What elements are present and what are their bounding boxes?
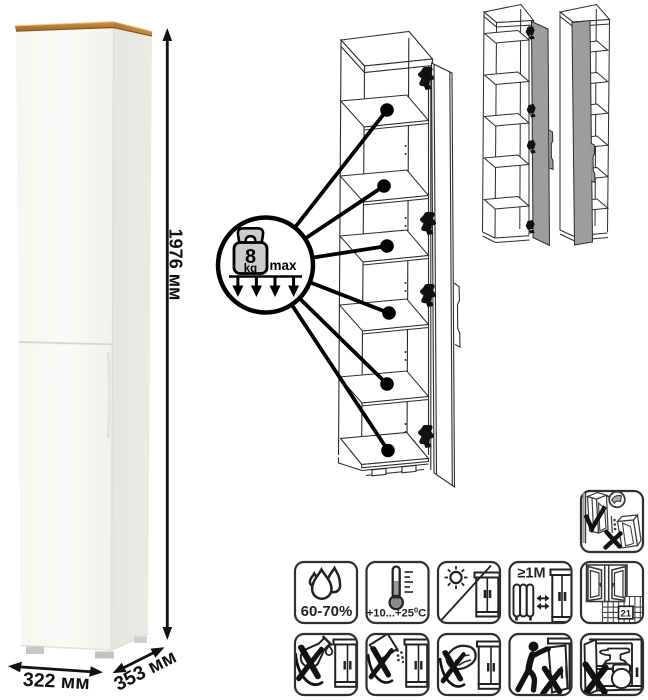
svg-text:+10...+250C: +10...+250C bbox=[367, 606, 427, 620]
svg-text:21: 21 bbox=[621, 608, 632, 619]
svg-text:kg: kg bbox=[244, 263, 257, 275]
svg-text:322 мм: 322 мм bbox=[22, 669, 90, 694]
svg-text:1976 мм: 1976 мм bbox=[166, 229, 186, 301]
svg-text:max: max bbox=[269, 258, 297, 273]
svg-text:60-70%: 60-70% bbox=[301, 603, 353, 620]
svg-text:≥1М: ≥1М bbox=[517, 566, 545, 582]
svg-text:353 мм: 353 мм bbox=[111, 646, 181, 696]
